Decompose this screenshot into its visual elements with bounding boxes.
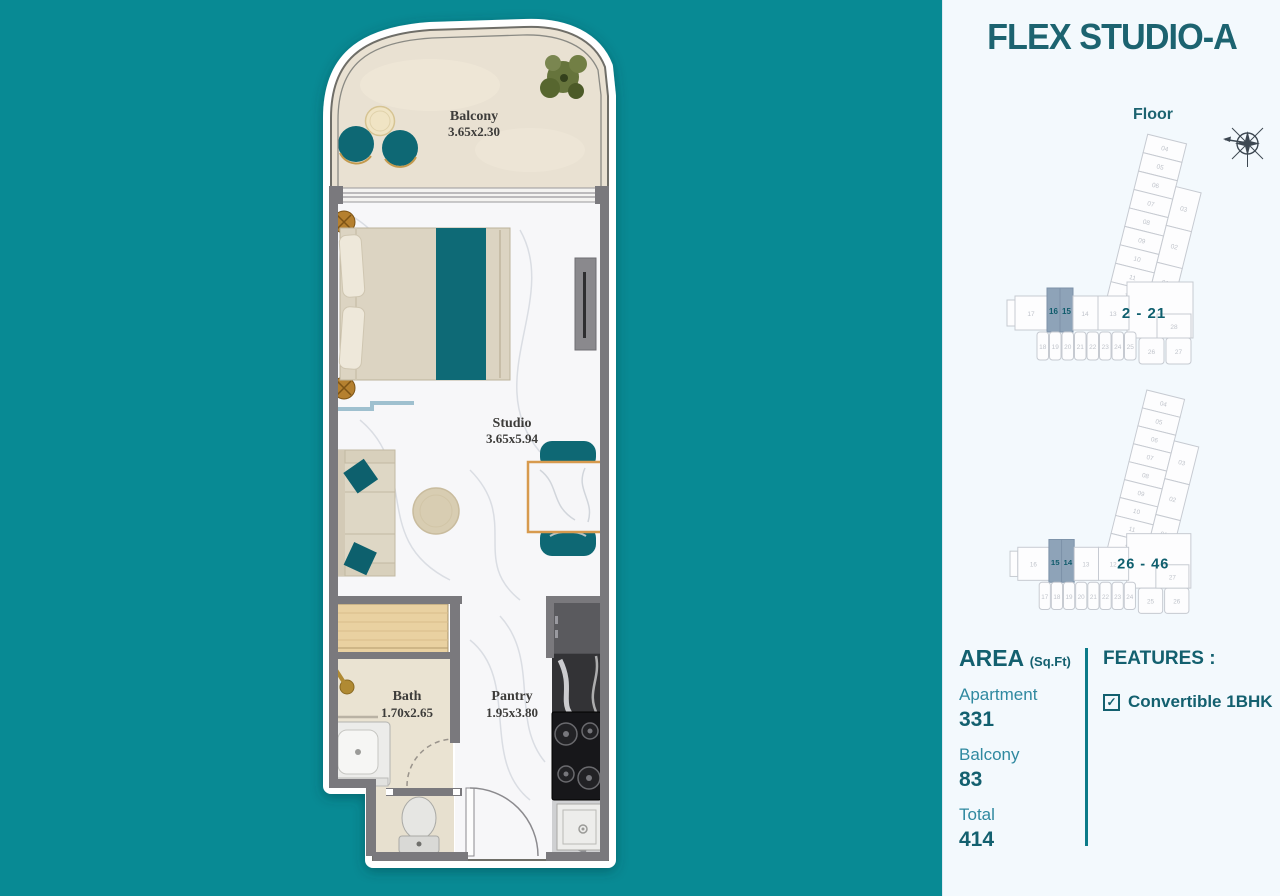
unit-number: 26	[1148, 349, 1156, 356]
sofa	[331, 450, 395, 576]
balcony-chair-right	[382, 130, 418, 167]
unit-number-highlighted: 16	[1049, 307, 1058, 316]
area-value: 414	[959, 828, 1081, 852]
features-section: FEATURES : ✓ Convertible 1BHK	[1103, 648, 1273, 712]
kitchen-sink	[557, 804, 602, 850]
unit-number: 19	[1066, 594, 1074, 601]
dining-table	[528, 462, 602, 532]
stove	[552, 712, 601, 800]
area-row-total: Total 414	[959, 805, 1081, 852]
unit-number: 23	[1114, 594, 1122, 601]
balcony-dims: 3.65x2.30	[448, 124, 500, 139]
studio-label: Studio	[493, 416, 532, 431]
vertical-divider	[1085, 648, 1088, 846]
unit-number: 14	[1081, 311, 1089, 318]
unit-number: 27	[1175, 349, 1183, 356]
bath-label: Bath	[393, 689, 422, 704]
feature-item: ✓ Convertible 1BHK	[1103, 692, 1273, 712]
feature-label: Convertible 1BHK	[1128, 692, 1273, 712]
wardrobe	[336, 604, 448, 653]
area-label: Balcony	[959, 745, 1081, 765]
tv-panel	[575, 258, 596, 350]
unit-number: 17	[1041, 594, 1049, 601]
unit-number: 18	[1053, 594, 1061, 601]
bed	[339, 228, 510, 380]
unit-number: 22	[1089, 344, 1097, 351]
area-label: Apartment	[959, 685, 1081, 705]
features-heading: FEATURES :	[1103, 648, 1273, 670]
area-value: 83	[959, 768, 1081, 792]
floor-range-label: 2 - 21	[1122, 305, 1166, 322]
area-row-balcony: Balcony 83	[959, 745, 1081, 792]
pantry-dims: 1.95x3.80	[486, 705, 538, 720]
unit-number: 18	[1039, 344, 1047, 351]
checkbox-checked-icon: ✓	[1103, 694, 1120, 711]
unit-number: 25	[1147, 599, 1155, 606]
unit-number: 16	[1030, 562, 1038, 569]
unit-number: 13	[1109, 311, 1117, 318]
sliding-door	[329, 186, 609, 204]
unit-number-highlighted: 14	[1064, 558, 1073, 567]
area-heading: AREA (Sq.Ft)	[959, 645, 1081, 672]
balcony-label: Balcony	[450, 109, 498, 124]
area-value: 331	[959, 708, 1081, 732]
unit-number: 21	[1090, 594, 1098, 601]
brochure-page: Balcony 3.65x2.30 Studio 3.65x5.94 Bath …	[0, 0, 1280, 896]
area-row-apartment: Apartment 331	[959, 685, 1081, 732]
unit-number: 21	[1077, 344, 1085, 351]
studio-dims: 3.65x5.94	[486, 431, 539, 446]
floor-plan: Balcony 3.65x2.30 Studio 3.65x5.94 Bath …	[0, 0, 942, 896]
bed-runner	[436, 228, 486, 380]
floor-heading: Floor	[1083, 106, 1223, 124]
unit-number: 25	[1127, 344, 1135, 351]
unit-number: 28	[1170, 324, 1178, 331]
unit-number: 20	[1064, 344, 1072, 351]
area-heading-text: AREA	[959, 645, 1023, 671]
unit-number: 20	[1078, 594, 1086, 601]
area-label: Total	[959, 805, 1081, 825]
area-unit-label: (Sq.Ft)	[1030, 654, 1071, 669]
unit-number: 24	[1114, 344, 1122, 351]
floor-diagram-26-46: 04 05 06 07 08 09 10 11 12 03 02 01 16 1…	[1001, 382, 1231, 627]
unit-number: 27	[1169, 574, 1177, 581]
unit-number: 17	[1027, 311, 1035, 318]
fridge	[552, 602, 606, 654]
balcony-chair-left	[338, 126, 374, 164]
bath-dims: 1.70x2.65	[381, 705, 434, 720]
floor-range-label: 26 - 46	[1117, 557, 1169, 573]
pantry-label: Pantry	[491, 689, 532, 704]
unit-number: 19	[1052, 344, 1060, 351]
unit-number: 13	[1082, 562, 1090, 569]
floor-diagram-2-21: 04 05 06 07 08 09 10 11 12 03 02 01 17 1…	[1001, 126, 1231, 378]
info-panel: FLEX STUDIO-A Floor 04 05 06 07 08 09 10…	[942, 0, 1280, 896]
unit-number: 24	[1126, 594, 1134, 601]
unit-number: 26	[1173, 599, 1181, 606]
toilet	[399, 797, 439, 853]
unit-number-highlighted: 15	[1062, 307, 1071, 316]
page-title: FLEX STUDIO-A	[951, 16, 1272, 58]
area-section: AREA (Sq.Ft) Apartment 331 Balcony 83 To…	[959, 645, 1081, 852]
unit-number: 22	[1102, 594, 1110, 601]
unit-number-highlighted: 15	[1051, 558, 1060, 567]
bath-sink	[332, 722, 390, 786]
unit-number: 12	[1110, 562, 1118, 569]
unit-number: 23	[1102, 344, 1110, 351]
